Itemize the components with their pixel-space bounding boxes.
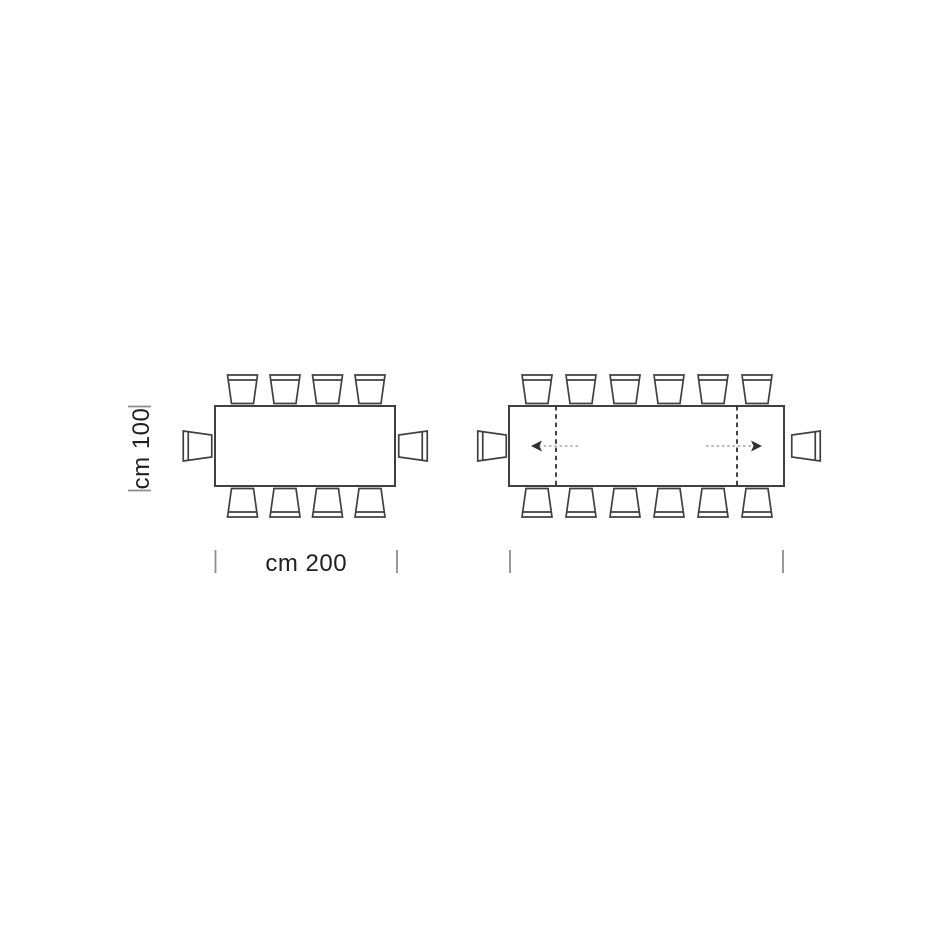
- chair-top: [228, 375, 258, 404]
- chair-bottom: [566, 489, 596, 518]
- table-top: [215, 406, 395, 486]
- table-closed: cm 200cm 100: [128, 375, 427, 577]
- chair-bottom: [522, 489, 552, 518]
- chair-bottom: [270, 489, 300, 518]
- chair-bottom: [228, 489, 258, 518]
- chair-bottom: [742, 489, 772, 518]
- chair-left-end: [478, 431, 507, 461]
- chair-top: [522, 375, 552, 404]
- chair-bottom: [313, 489, 343, 518]
- chair-bottom: [654, 489, 684, 518]
- chair-right-end: [792, 431, 821, 461]
- chair-top: [355, 375, 385, 404]
- chair-top: [270, 375, 300, 404]
- chair-left-end: [183, 431, 212, 461]
- chair-bottom: [698, 489, 728, 518]
- chair-top: [654, 375, 684, 404]
- chair-bottom: [610, 489, 640, 518]
- diagram-canvas: cm 200cm 100: [0, 0, 950, 950]
- table-extended: [478, 375, 821, 573]
- chair-bottom: [355, 489, 385, 518]
- chair-top: [610, 375, 640, 404]
- chair-top: [698, 375, 728, 404]
- chair-top: [742, 375, 772, 404]
- seating-plan-diagram: cm 200cm 100: [0, 0, 950, 950]
- width-dim-label: cm 200: [265, 550, 347, 577]
- chair-top: [313, 375, 343, 404]
- chair-top: [566, 375, 596, 404]
- chair-right-end: [399, 431, 428, 461]
- height-dim-label: cm 100: [128, 408, 155, 490]
